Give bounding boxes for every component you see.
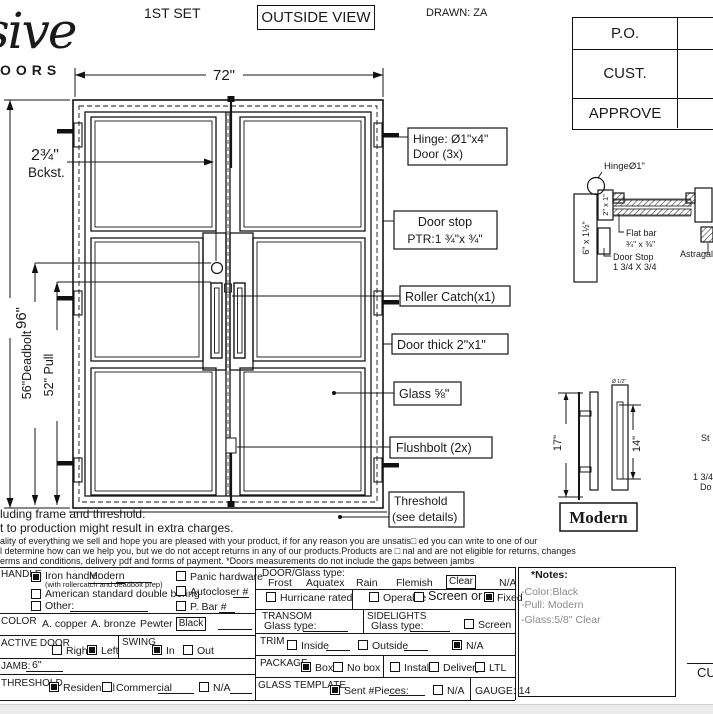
checkbox-gt-sent[interactable] — [330, 685, 340, 695]
edge-fragment-1: St — [701, 434, 710, 444]
glass-option-frost[interactable]: Frost — [268, 578, 292, 590]
deadbolt-circle — [212, 263, 223, 274]
checkbox-pbar[interactable] — [176, 601, 186, 611]
swing-out-label: Out — [197, 646, 214, 658]
gt-na-label: N/A — [447, 686, 465, 698]
checkbox-operable[interactable] — [369, 592, 379, 602]
package-ltl-label: LTL — [489, 663, 506, 675]
checkbox-threshold-na[interactable] — [199, 682, 209, 692]
checkbox-american-standard[interactable] — [31, 589, 41, 599]
door-elevation-drawing: 72" 96" 56"Deadbolt 52" Pull 2¾" Bckst. — [0, 60, 515, 540]
hinge-barrel — [588, 178, 605, 195]
logo-script-text: sive — [0, 2, 76, 60]
glass-selected-clear[interactable]: Clear — [446, 575, 476, 589]
screen-or-label: Screen or — [428, 590, 482, 604]
notes-line3: -Glass:5/8" Clear — [521, 615, 601, 627]
astragal-profile — [701, 227, 713, 242]
pull-handle-right — [234, 283, 245, 358]
callout-threshold-line1: Threshold — [394, 494, 447, 508]
dim-width-label: 72" — [213, 67, 235, 84]
backset-label: Bckst. — [28, 165, 65, 180]
checkbox-autocloser[interactable] — [176, 586, 186, 596]
title-block-approve-value[interactable] — [678, 99, 713, 128]
trim-inside-fill-line[interactable] — [326, 650, 350, 651]
handle-front-view — [612, 385, 628, 490]
callout-threshold-line2: (see details) — [392, 510, 457, 524]
panic-hardware-label: Panic hardware — [190, 572, 263, 584]
jamb-section-detail: HingeØ1" 6" x 1½" 2" x 1" Flat bar ¾" x … — [555, 150, 713, 305]
gt-sent-fill-line[interactable] — [389, 695, 425, 696]
notes-line2: -Pull: Modern — [521, 600, 583, 612]
jamb-fill-line[interactable] — [26, 671, 63, 672]
trim-label: TRIM — [260, 636, 284, 647]
hurricane-label: Hurricane rated — [280, 593, 352, 605]
checkbox-panic-hardware[interactable] — [176, 571, 186, 581]
color-selected-black[interactable]: Black — [176, 617, 206, 631]
section-doorstop-line1: Door Stop — [613, 252, 654, 262]
checkbox-package-install[interactable] — [390, 662, 400, 672]
trim-na-label: N/A — [466, 641, 484, 653]
autocloser-fill-line[interactable] — [233, 597, 249, 598]
callout-glass: Glass ⅝" — [399, 387, 449, 401]
disclaimer-line1: luding frame and threshold. — [0, 508, 145, 521]
handle-height-label: 17" — [552, 435, 564, 451]
backset-value: 2¾" — [31, 147, 59, 164]
threshold-na-fill-line[interactable] — [230, 693, 252, 694]
color-fill-line[interactable] — [218, 629, 252, 630]
trim-outside-label: Outside — [372, 641, 408, 653]
callout-door-thick: Door thick 2"x1" — [397, 338, 486, 352]
color-section-label: COLOR — [1, 616, 37, 627]
checkbox-iron-handle[interactable] — [31, 572, 41, 582]
section-jamb-label: 6" x 1½" — [581, 221, 591, 254]
shop-drawing-page: { "header": { "set_label": "1ST SET", "v… — [0, 0, 713, 713]
edge-fragment-cust: CU — [697, 666, 713, 680]
checkbox-swing-out[interactable] — [183, 645, 193, 655]
checkbox-screen-or[interactable] — [414, 592, 424, 602]
dim-deadbolt-label: 56"Deadbolt — [20, 330, 34, 399]
transom-glass-fill-line[interactable] — [303, 631, 348, 632]
callout-doorstop-line2: PTR:1 ¾"x ¾" — [407, 232, 482, 246]
checkbox-fixed[interactable] — [484, 592, 494, 602]
glass-option-aquatex[interactable]: Aquatex — [306, 578, 345, 590]
glass-option-flemish[interactable]: Flemish — [396, 578, 433, 590]
checkbox-package-delivery[interactable] — [429, 662, 439, 672]
notes-title: *Notes: — [531, 570, 568, 582]
handle-diameter-label: Ø 1/2" — [612, 379, 626, 385]
sidelights-screen-label: Screen — [478, 620, 511, 632]
section-astragal-label: Astragal — [680, 249, 713, 259]
title-block-cust-label: CUST. — [573, 50, 678, 98]
checkbox-trim-outside[interactable] — [358, 640, 368, 650]
dim-height-label: 96" — [13, 307, 30, 329]
checkbox-swing-in[interactable] — [152, 645, 162, 655]
section-hinge-label: HingeØ1" — [604, 161, 645, 172]
checkbox-trim-inside[interactable] — [287, 640, 297, 650]
handle-side-view — [590, 392, 598, 490]
trim-outside-fill-line[interactable] — [404, 650, 428, 651]
checkbox-other[interactable] — [31, 601, 41, 611]
glass-option-rain[interactable]: Rain — [356, 578, 378, 590]
handle-detail: 17" 14" Ø 1/2" Modern — [548, 378, 663, 536]
set-label: 1ST SET — [144, 6, 201, 21]
title-block-approve-label: APPROVE — [573, 99, 678, 128]
package-install-label: Install — [404, 663, 431, 675]
notes-line1: -Color:Black — [521, 587, 578, 599]
checkbox-hurricane[interactable] — [266, 592, 276, 602]
sidelights-glass-fill-line[interactable] — [410, 631, 450, 632]
checkbox-residential[interactable] — [49, 682, 59, 692]
color-option-pewter[interactable]: Pewter — [140, 619, 173, 631]
handle-name-label: Modern — [569, 508, 628, 527]
view-label-box: OUTSIDE VIEW — [257, 5, 375, 30]
color-option-copper[interactable]: A. copper — [42, 619, 87, 631]
active-left-label: Left — [101, 646, 119, 658]
disclaimer-line5: erms and conditions, delivery pdf and fo… — [0, 557, 474, 567]
package-box-label: Box — [315, 663, 333, 675]
callout-flushbolt: Flushbolt (2x) — [396, 441, 472, 455]
callout-boxes — [389, 128, 510, 527]
section-flatbar-line2: ¾" x ⅜" — [626, 239, 655, 249]
package-nobox-label: No box — [347, 663, 380, 675]
section-flatbar-line1: Flat bar — [626, 228, 657, 238]
callout-hinge-line2: Door (3x) — [413, 147, 463, 161]
checkbox-sidelights-screen[interactable] — [464, 619, 474, 629]
callout-roller-catch: Roller Catch(x1) — [405, 290, 495, 304]
other-fill-line[interactable] — [70, 611, 148, 612]
commercial-fill-line[interactable] — [158, 693, 194, 694]
disclaimer-line2: t to production might result in extra ch… — [0, 522, 233, 535]
checkbox-active-right[interactable] — [52, 645, 62, 655]
section-doorstop-line2: 1 3/4 X 3/4 — [613, 262, 657, 272]
title-block-cust-value[interactable] — [678, 50, 713, 98]
trim-inside-label: Inside — [301, 641, 329, 653]
checkbox-package-ltl[interactable] — [475, 662, 485, 672]
section-tube-label: 2" x 1" — [601, 194, 610, 216]
checkbox-gt-na[interactable] — [433, 685, 443, 695]
drawn-label: DRAWN: ZA — [426, 7, 487, 19]
title-block-po-label: P.O. — [573, 18, 678, 49]
checkbox-package-box[interactable] — [301, 662, 311, 672]
color-option-bronze[interactable]: A. bronze — [91, 619, 136, 631]
pbar-fill-line[interactable] — [219, 612, 235, 613]
title-block-po-value[interactable] — [678, 18, 713, 49]
swing-label: SWING — [122, 637, 156, 648]
dim-pull-label: 52" Pull — [42, 354, 56, 397]
title-block-table: P.O. CUST. APPROVE — [572, 17, 713, 130]
threshold-na-label: N/A — [213, 683, 231, 695]
pull-handle-left — [211, 283, 222, 358]
edge-fragment-3: Do — [700, 483, 712, 493]
logo-sub-text: OORS — [0, 62, 61, 78]
checkbox-commercial[interactable] — [102, 682, 112, 692]
handle-spacing-label: 14" — [631, 436, 643, 452]
jamb-value[interactable]: 6" — [32, 660, 42, 672]
checkbox-package-nobox[interactable] — [333, 662, 343, 672]
checkbox-trim-na[interactable] — [452, 640, 462, 650]
callout-doorstop-line1: Door stop — [418, 215, 472, 229]
checkbox-active-left[interactable] — [87, 645, 97, 655]
glass-na-label[interactable]: N/A — [499, 578, 517, 590]
callout-hinge-line1: Hinge: Ø1"x4" — [413, 132, 488, 146]
swing-in-label: In — [166, 646, 175, 658]
